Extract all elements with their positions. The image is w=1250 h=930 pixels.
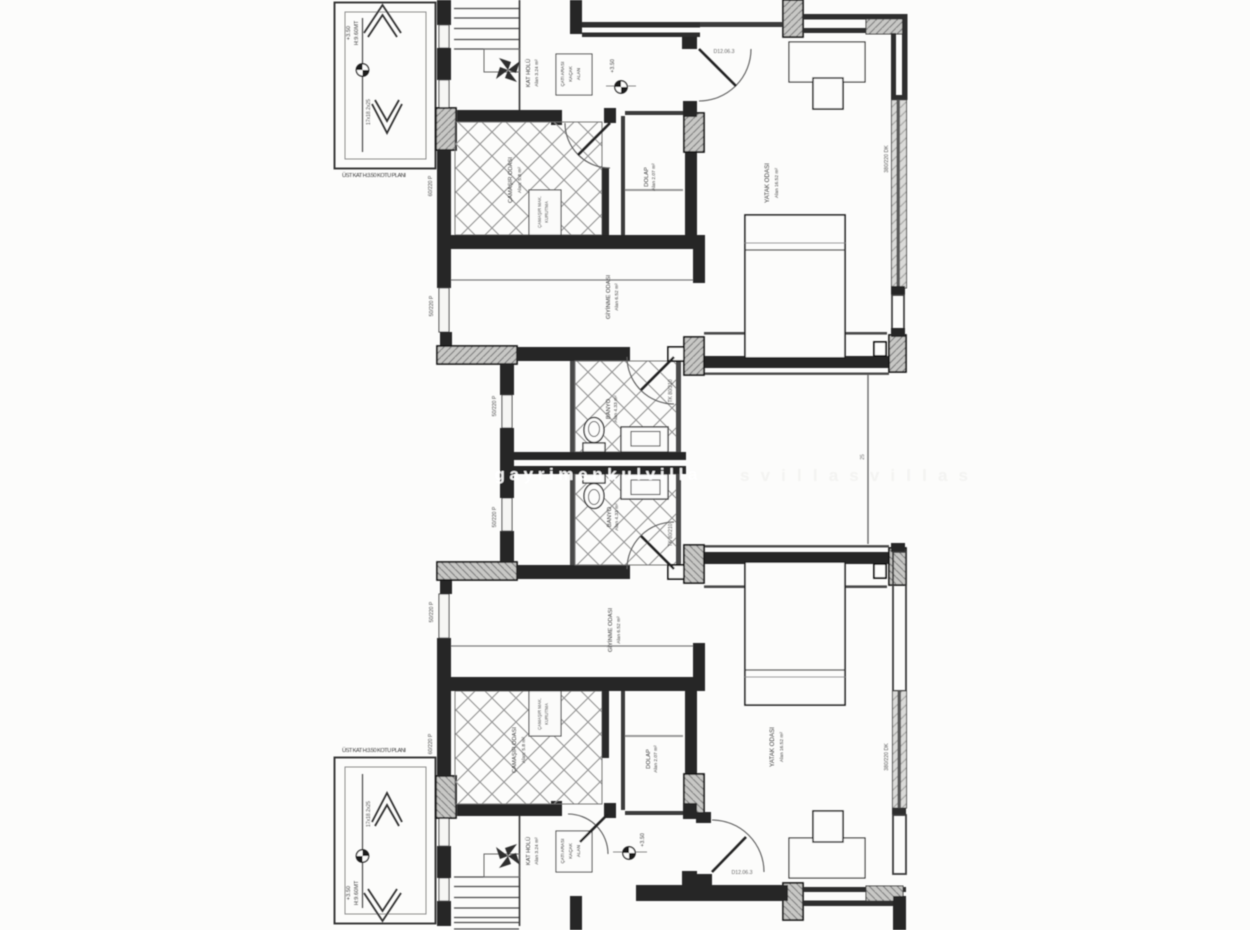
svg-text:ÇATI ARASI: ÇATI ARASI xyxy=(560,839,565,864)
svg-text:60/220 P: 60/220 P xyxy=(428,175,434,196)
svg-text:H:9.60MT: H:9.60MT xyxy=(354,20,360,45)
svg-text:380/220 DK: 380/220 DK xyxy=(884,145,890,173)
svg-text:KAT HOLÜ: KAT HOLÜ xyxy=(525,59,532,87)
svg-text:KURUTMA: KURUTMA xyxy=(544,703,549,725)
svg-text:KAÇAK: KAÇAK xyxy=(568,65,573,82)
svg-text:YATAK ODASI: YATAK ODASI xyxy=(769,727,776,767)
svg-text:17x18.2x25: 17x18.2x25 xyxy=(366,801,372,827)
svg-text:380/220 DK: 380/220 DK xyxy=(884,743,890,771)
svg-text:50/220 P: 50/220 P xyxy=(492,395,498,416)
svg-text:50/220 P: 50/220 P xyxy=(429,601,435,622)
svg-text:DOLAP: DOLAP xyxy=(644,167,650,187)
svg-text:50/220 P: 50/220 P xyxy=(429,295,435,316)
svg-text:TK 80/210: TK 80/210 xyxy=(668,379,674,402)
svg-text:GİYİNME ODASI: GİYİNME ODASI xyxy=(607,608,614,653)
svg-text:50/220 P: 50/220 P xyxy=(492,506,498,527)
svg-text:Alan 6.52 m²: Alan 6.52 m² xyxy=(616,616,622,644)
svg-text:+3.50: +3.50 xyxy=(610,59,616,73)
svg-text:Alan 4.33 m²: Alan 4.33 m² xyxy=(613,395,619,423)
svg-text:ÇAMAŞIR ODASI: ÇAMAŞIR ODASI xyxy=(508,157,514,203)
svg-text:ÇATI ARASI: ÇATI ARASI xyxy=(560,62,565,87)
svg-text:D12.06.3: D12.06.3 xyxy=(731,870,752,876)
svg-text:Alan: 5.8 m²: Alan: 5.8 m² xyxy=(517,167,523,193)
svg-text:Alan 3.24 m²: Alan 3.24 m² xyxy=(534,59,540,87)
svg-text:25: 25 xyxy=(860,454,866,460)
svg-text:KAÇAK: KAÇAK xyxy=(568,842,573,859)
svg-text:D12.06.3: D12.06.3 xyxy=(713,49,734,55)
svg-text:Alan 2.07 m²: Alan 2.07 m² xyxy=(653,745,659,773)
svg-text:+3.50: +3.50 xyxy=(346,26,352,40)
svg-text:GİYİNME ODASI: GİYİNME ODASI xyxy=(605,275,612,320)
svg-text:KURUTMA: KURUTMA xyxy=(544,201,549,223)
svg-text:ALAN: ALAN xyxy=(576,68,581,80)
svg-text:BANYO: BANYO xyxy=(607,506,613,527)
svg-text:ÇAMAŞIR MAK.: ÇAMAŞIR MAK. xyxy=(537,698,542,730)
svg-text:YATAK ODASI: YATAK ODASI xyxy=(764,163,771,203)
svg-text:gayrimenkulvilla: gayrimenkulvilla xyxy=(495,465,700,484)
svg-text:+3.50: +3.50 xyxy=(346,886,352,900)
svg-text:Alan 3.24 m²: Alan 3.24 m² xyxy=(534,837,540,865)
svg-text:+3.50: +3.50 xyxy=(640,833,646,847)
svg-text:KAT HOLÜ: KAT HOLÜ xyxy=(525,837,532,865)
svg-text:BANYO: BANYO xyxy=(606,398,612,419)
svg-text:ÇAMAŞIR MAK.: ÇAMAŞIR MAK. xyxy=(537,196,542,228)
svg-text:ÇAMAŞIR ODASI: ÇAMAŞIR ODASI xyxy=(512,727,518,773)
svg-text:Alan 4.33 m²: Alan 4.33 m² xyxy=(614,503,620,531)
svg-text:ÜST KAT H:3.50 KOTU PLANI: ÜST KAT H:3.50 KOTU PLANI xyxy=(342,172,406,179)
svg-text:17x18.2x25: 17x18.2x25 xyxy=(366,99,372,125)
svg-text:Alan 2.07 m²: Alan 2.07 m² xyxy=(651,163,657,191)
svg-text:H:9.60MT: H:9.60MT xyxy=(354,880,360,905)
svg-text:Alan 16.52 m²: Alan 16.52 m² xyxy=(779,732,785,762)
svg-text:60/220 P: 60/220 P xyxy=(428,733,434,754)
svg-text:Alan: 5.8 m²: Alan: 5.8 m² xyxy=(521,737,527,763)
svg-text:ÜST KAT H:3.50 KOTU PLANI: ÜST KAT H:3.50 KOTU PLANI xyxy=(342,747,406,754)
svg-text:ALAN: ALAN xyxy=(576,845,581,857)
svg-text:DOLAP: DOLAP xyxy=(646,749,652,769)
svg-text:Alan 16.52 m²: Alan 16.52 m² xyxy=(774,168,780,198)
svg-text:TK 80/210: TK 80/210 xyxy=(668,523,674,546)
svg-text:Alan 6.52 m²: Alan 6.52 m² xyxy=(614,283,620,311)
svg-text:svillasvillas: svillasvillas xyxy=(740,466,970,485)
